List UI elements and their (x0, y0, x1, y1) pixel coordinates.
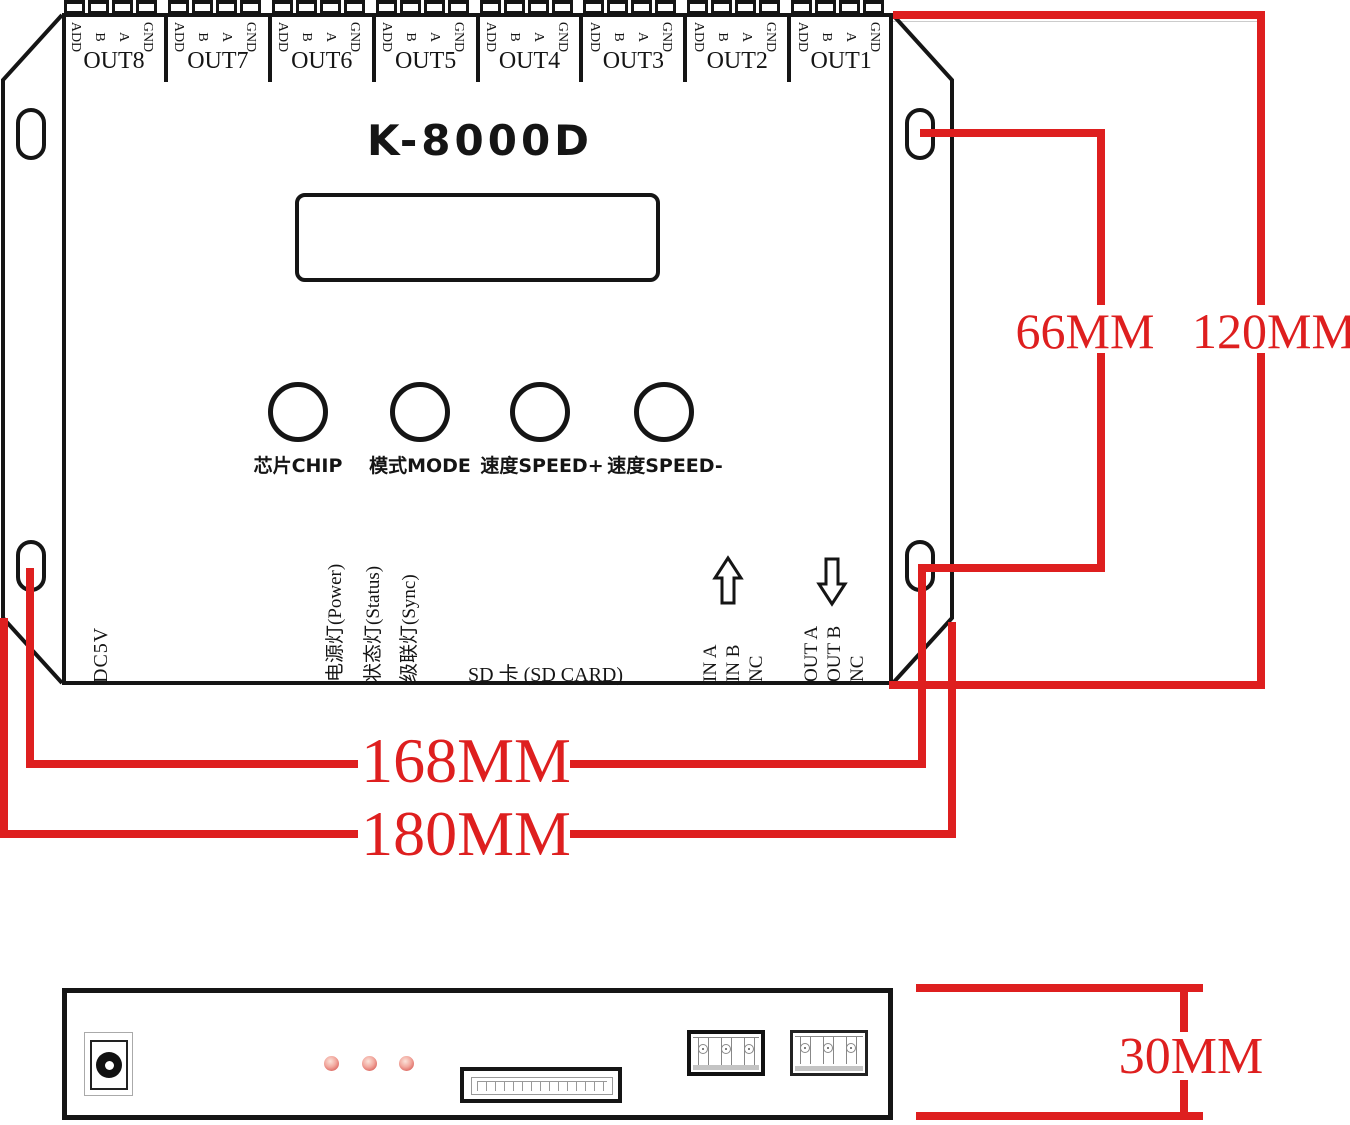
dim-66mm-bottom-line (920, 564, 1105, 572)
dim-120mm-vline-lower (1257, 353, 1265, 689)
dim-120mm-top-line (893, 11, 1265, 19)
dim-66mm-top-line (920, 129, 1105, 137)
dim-168mm-hline-right (570, 760, 926, 768)
dim-30mm-top-line (916, 984, 1203, 992)
dim-label-120mm: 120MM (1192, 303, 1350, 359)
dim-66mm-vline-upper (1097, 129, 1105, 305)
dim-label-66mm: 66MM (1015, 303, 1155, 359)
diagram-linework (0, 0, 1350, 1125)
dim-30mm-vline-upper (1180, 984, 1188, 1032)
dim-label-168mm: 168MM (356, 726, 576, 796)
dim-label-180mm: 180MM (356, 799, 576, 869)
dim-label-30mm: 30MM (1116, 1028, 1266, 1086)
input-up-arrow-icon (715, 558, 741, 603)
dim-180mm-right-vline (948, 622, 956, 836)
dim-168mm-left-vline (26, 568, 34, 766)
dim-180mm-hline-left (0, 830, 358, 838)
dim-30mm-vline-lower (1180, 1080, 1188, 1120)
dim-168mm-right-vline (918, 564, 926, 766)
dim-120mm-bottom-line (889, 681, 1265, 689)
dim-180mm-hline-right (570, 830, 956, 838)
output-down-arrow-icon (819, 559, 845, 604)
dim-180mm-left-vline (0, 618, 8, 836)
dim-120mm-vline-upper (1257, 11, 1265, 305)
dim-30mm-bottom-line (916, 1112, 1203, 1120)
dim-66mm-vline-lower (1097, 353, 1105, 572)
device-diagram: K-8000D 芯片CHIP 模式MODE 速度SPEED+ 速度SPEED- … (0, 0, 1350, 1125)
dim-168mm-hline-left (26, 760, 358, 768)
